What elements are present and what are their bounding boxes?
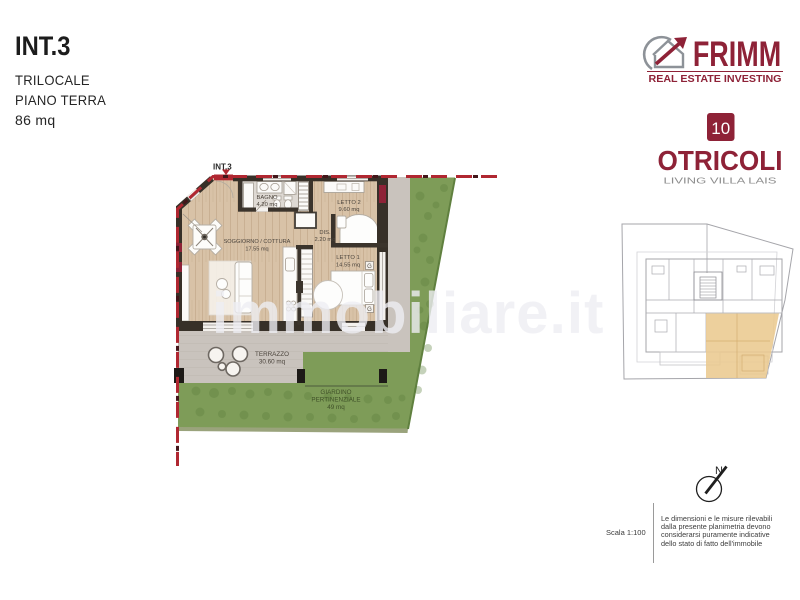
svg-text:49 mq: 49 mq xyxy=(327,404,345,411)
svg-text:PERTINENZIALE: PERTINENZIALE xyxy=(311,397,360,404)
svg-text:FRIMM: FRIMM xyxy=(693,35,781,74)
svg-text:LETTO 1: LETTO 1 xyxy=(336,255,359,261)
svg-text:14.55 mq: 14.55 mq xyxy=(336,263,360,269)
svg-text:LIVING VILLA LAIS: LIVING VILLA LAIS xyxy=(664,176,777,186)
svg-text:30.60 mq: 30.60 mq xyxy=(259,359,286,366)
svg-text:BAGNO: BAGNO xyxy=(257,195,278,201)
svg-text:OTRICOLI: OTRICOLI xyxy=(658,145,783,176)
svg-text:9.60 mq: 9.60 mq xyxy=(339,207,360,213)
svg-text:G: G xyxy=(367,264,372,270)
svg-text:TERRAZZO: TERRAZZO xyxy=(255,351,289,358)
svg-text:SOGGIORNO / COTTURA: SOGGIORNO / COTTURA xyxy=(224,239,291,245)
svg-text:4.20 mq: 4.20 mq xyxy=(257,202,278,208)
svg-text:17.55 mq: 17.55 mq xyxy=(245,247,268,253)
svg-text:GIARDINO: GIARDINO xyxy=(320,389,351,396)
svg-text:2.20 mq: 2.20 mq xyxy=(315,237,336,243)
svg-text:10: 10 xyxy=(711,119,730,138)
svg-text:DIS.: DIS. xyxy=(319,230,331,236)
svg-text:REAL ESTATE INVESTING: REAL ESTATE INVESTING xyxy=(649,74,782,85)
svg-text:N: N xyxy=(715,465,723,477)
svg-text:LETTO 2: LETTO 2 xyxy=(337,200,360,206)
